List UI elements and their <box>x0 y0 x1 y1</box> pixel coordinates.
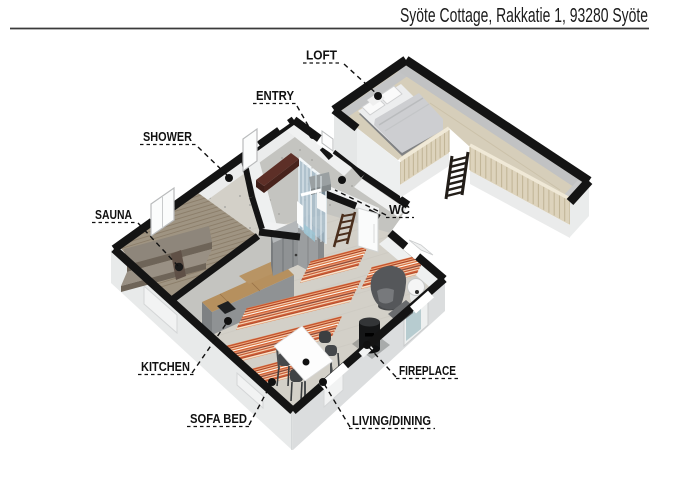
svg-text:FIREPLACE: FIREPLACE <box>399 363 456 378</box>
svg-text:LOFT: LOFT <box>306 48 337 63</box>
svg-text:SOFA BED: SOFA BED <box>190 411 247 426</box>
svg-text:WC: WC <box>389 202 411 217</box>
svg-text:KITCHEN: KITCHEN <box>141 359 190 374</box>
svg-text:LIVING/DINING: LIVING/DINING <box>352 413 431 428</box>
svg-text:Syöte Cottage, Rakkatie 1, 932: Syöte Cottage, Rakkatie 1, 93280 Syöte <box>400 4 648 27</box>
svg-text:SHOWER: SHOWER <box>143 129 193 144</box>
svg-text:ENTRY: ENTRY <box>256 88 294 103</box>
svg-text:SAUNA: SAUNA <box>95 207 132 222</box>
